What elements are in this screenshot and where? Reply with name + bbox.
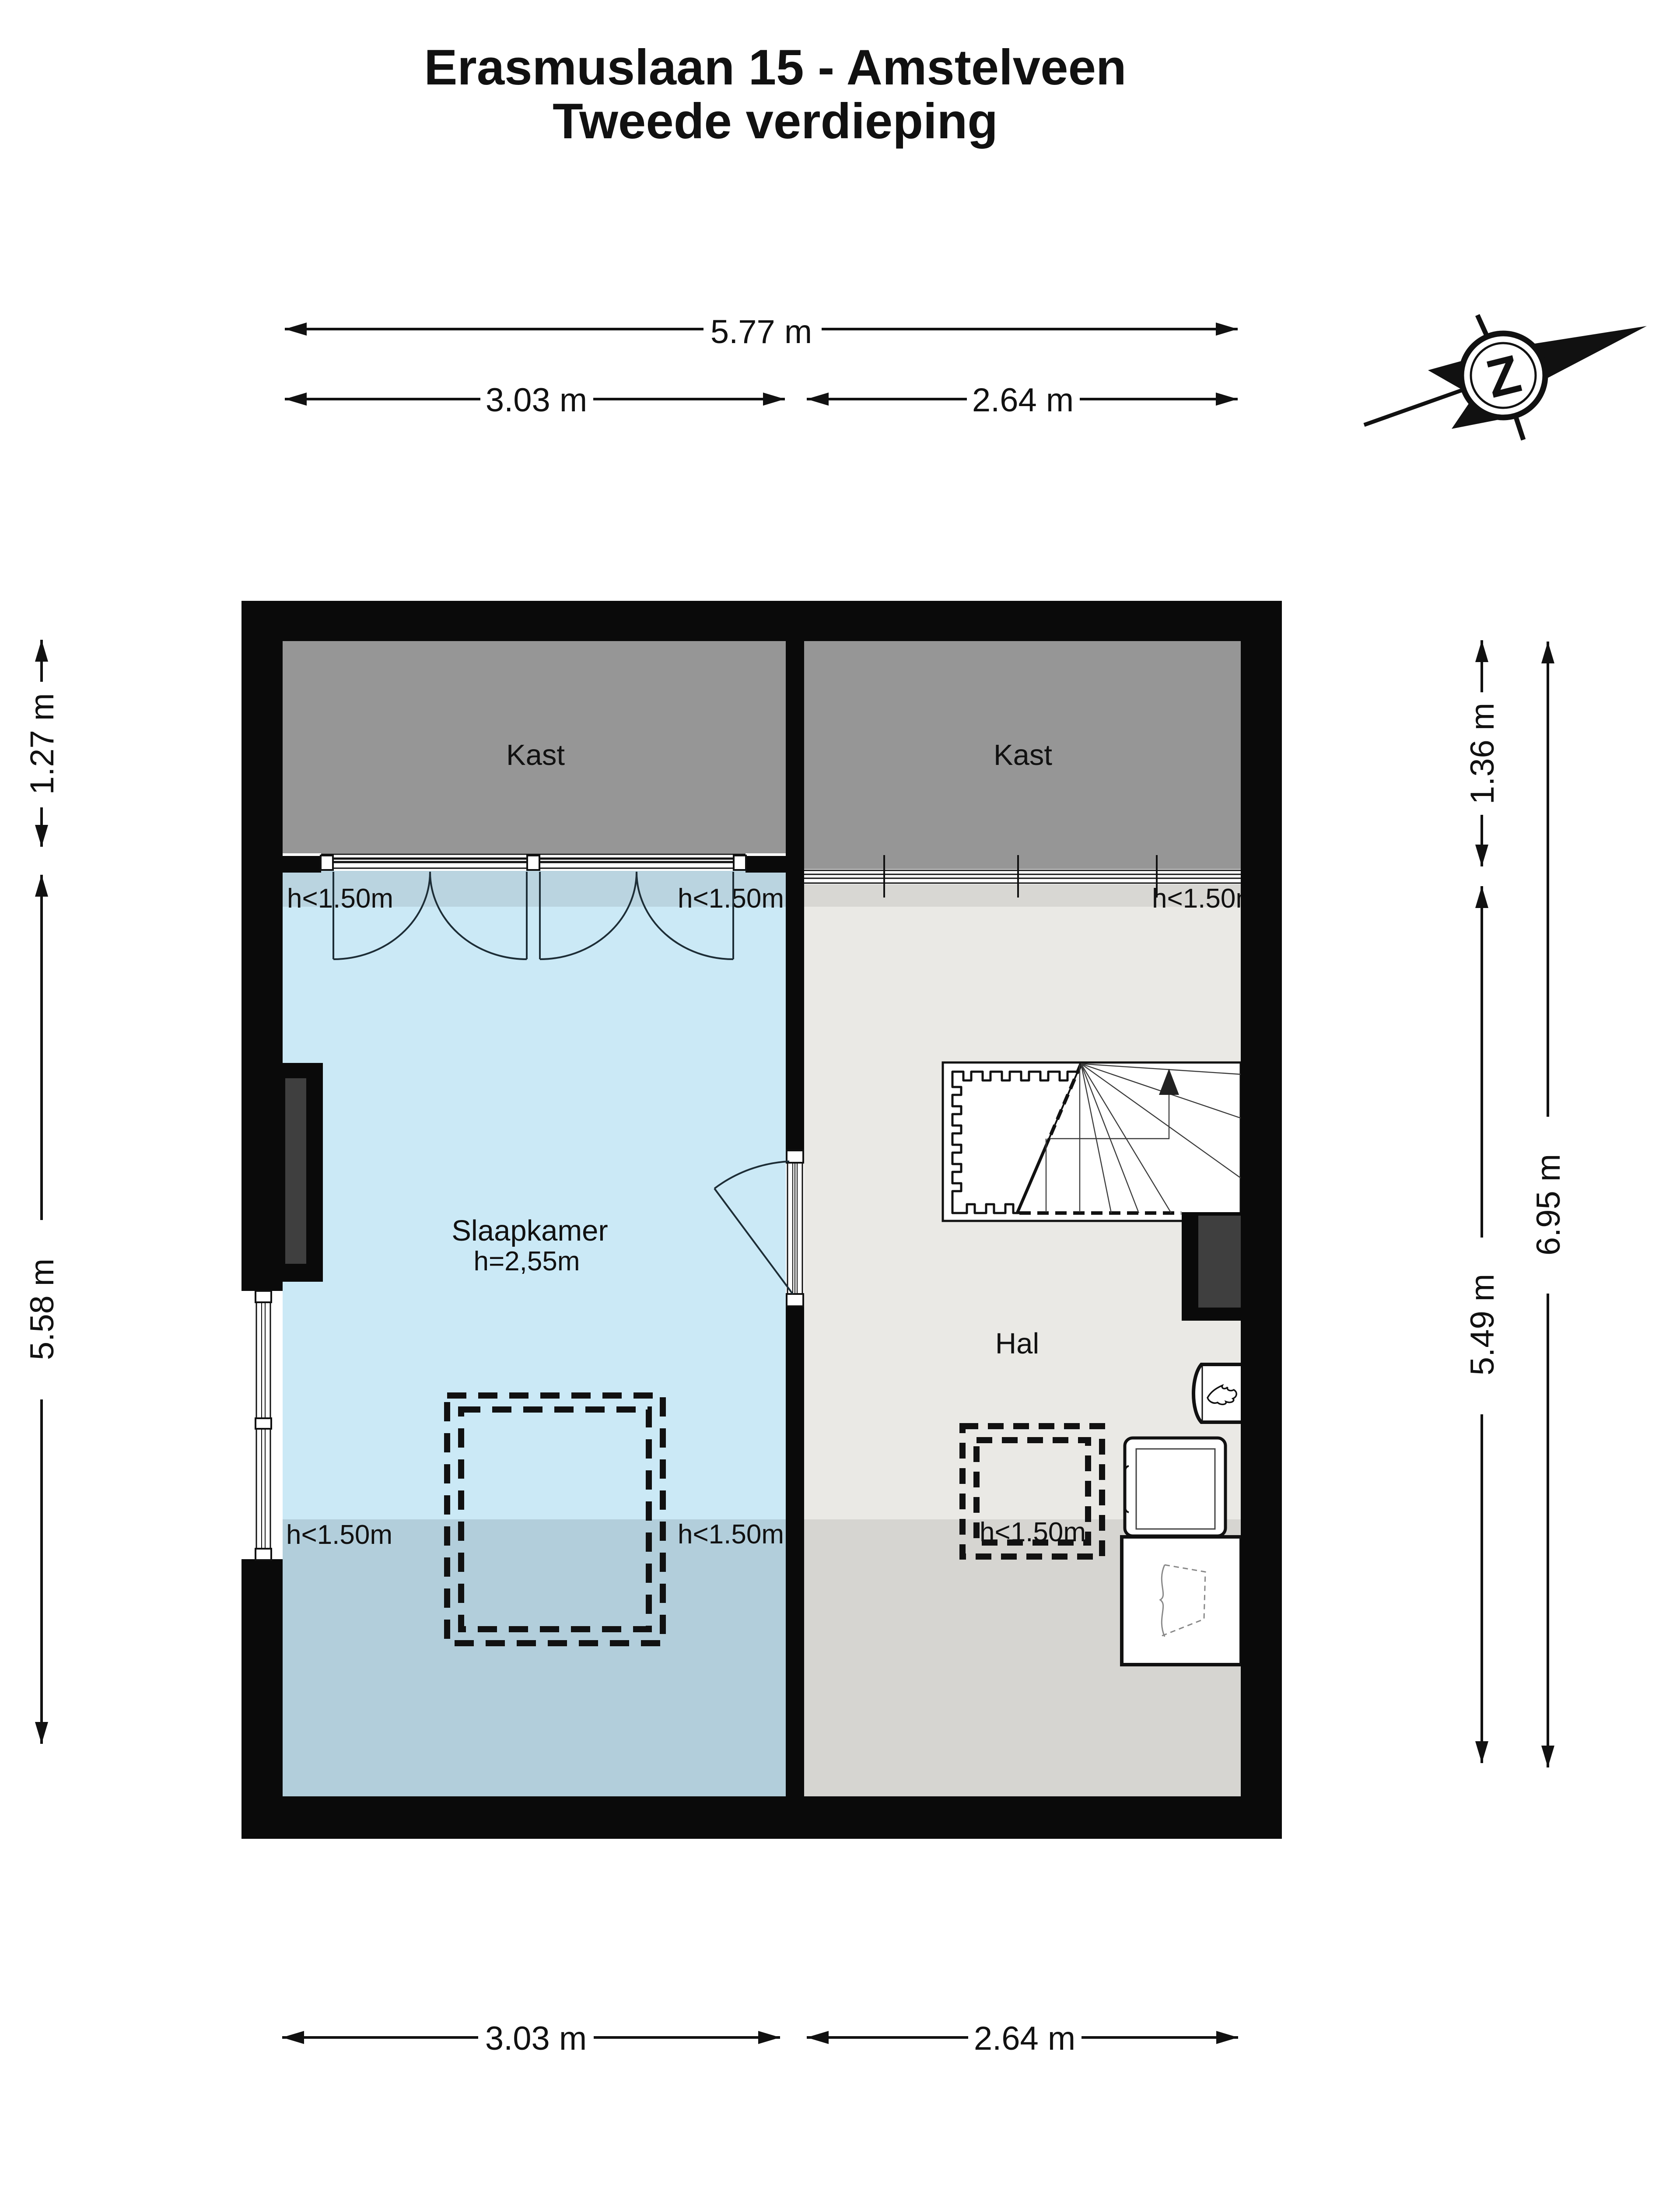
svg-text:Hal: Hal: [995, 1327, 1039, 1360]
svg-text:1.36 m: 1.36 m: [1464, 703, 1501, 804]
svg-text:5.58 m: 5.58 m: [24, 1259, 61, 1360]
svg-text:3.03 m: 3.03 m: [486, 382, 587, 419]
svg-text:6.95 m: 6.95 m: [1530, 1154, 1567, 1255]
svg-text:Erasmuslaan 15 - Amstelveen: Erasmuslaan 15 - Amstelveen: [424, 40, 1126, 95]
svg-text:Tweede verdieping: Tweede verdieping: [553, 94, 998, 149]
svg-text:h<1.50m: h<1.50m: [286, 1520, 392, 1550]
svg-text:3.03 m: 3.03 m: [485, 2020, 587, 2057]
svg-text:h<1.50m: h<1.50m: [678, 884, 784, 914]
svg-text:Slaapkamer: Slaapkamer: [451, 1214, 608, 1247]
svg-text:1.27 m: 1.27 m: [24, 693, 61, 795]
svg-text:h<1.50m: h<1.50m: [287, 884, 393, 914]
svg-text:h<1.50m: h<1.50m: [678, 1519, 784, 1550]
svg-text:5.49 m: 5.49 m: [1464, 1274, 1501, 1375]
svg-text:h<1.50m: h<1.50m: [980, 1517, 1086, 1547]
svg-text:Kast: Kast: [994, 739, 1052, 771]
svg-text:2.64 m: 2.64 m: [972, 382, 1074, 419]
svg-text:h=2,55m: h=2,55m: [473, 1246, 580, 1276]
svg-text:2.64 m: 2.64 m: [974, 2020, 1075, 2057]
svg-text:5.77 m: 5.77 m: [710, 313, 812, 351]
svg-text:Kast: Kast: [506, 739, 565, 771]
